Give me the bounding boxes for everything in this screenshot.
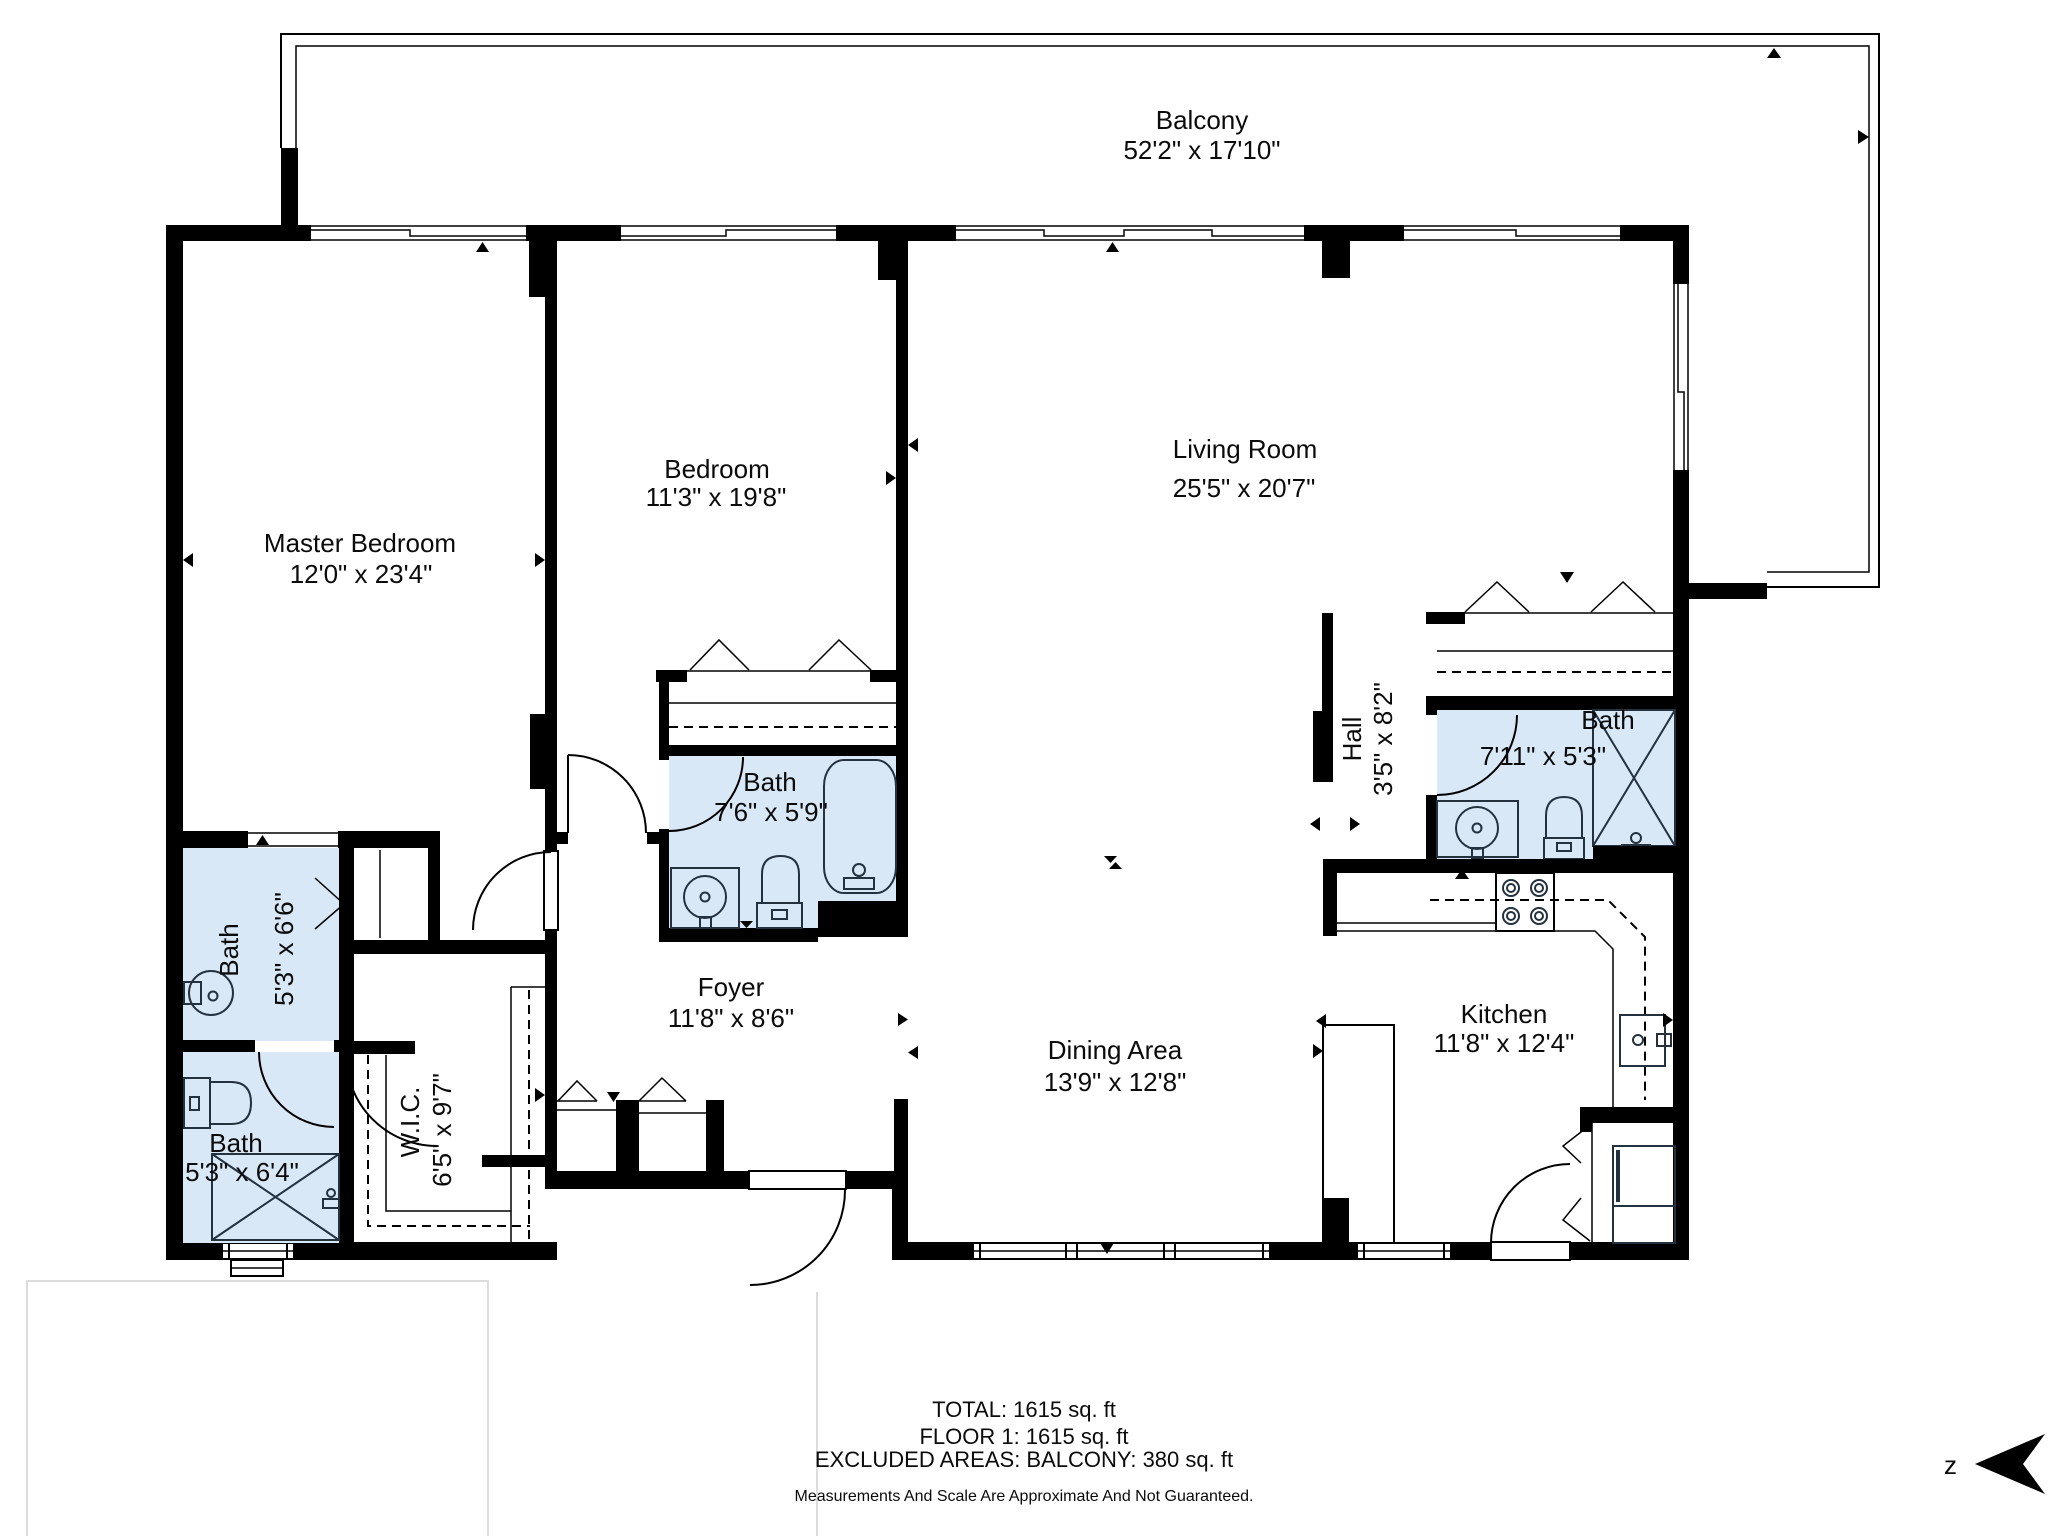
svg-text:13'9" x 12'8": 13'9" x 12'8" <box>1044 1067 1187 1097</box>
svg-text:11'3" x 19'8": 11'3" x 19'8" <box>646 482 787 512</box>
svg-text:Measurements And Scale Are App: Measurements And Scale Are Approximate A… <box>795 1488 1254 1505</box>
svg-text:Kitchen: Kitchen <box>1461 999 1548 1029</box>
svg-text:W.I.C.: W.I.C. <box>395 1087 425 1158</box>
svg-text:Hall: Hall <box>1337 717 1367 762</box>
svg-text:25'5" x 20'7": 25'5" x 20'7" <box>1173 473 1316 503</box>
svg-text:11'8" x 12'4": 11'8" x 12'4" <box>1434 1028 1575 1058</box>
svg-text:EXCLUDED AREAS: BALCONY: 380 s: EXCLUDED AREAS: BALCONY: 380 sq. ft <box>815 1447 1233 1472</box>
svg-text:3'5" x 8'2": 3'5" x 8'2" <box>1368 682 1398 796</box>
svg-text:Living Room: Living Room <box>1173 434 1318 464</box>
svg-text:Balcony: Balcony <box>1156 105 1249 135</box>
svg-text:TOTAL: 1615 sq. ft: TOTAL: 1615 sq. ft <box>932 1397 1116 1422</box>
svg-text:Bath: Bath <box>209 1128 263 1158</box>
svg-text:FLOOR 1: 1615 sq. ft: FLOOR 1: 1615 sq. ft <box>919 1424 1128 1449</box>
svg-text:Dining Area: Dining Area <box>1048 1035 1183 1065</box>
svg-text:Bedroom: Bedroom <box>664 454 770 484</box>
svg-text:Bath: Bath <box>1581 705 1635 735</box>
svg-text:7'11" x 5'3": 7'11" x 5'3" <box>1480 741 1606 771</box>
svg-text:5'3" x 6'4": 5'3" x 6'4" <box>185 1157 299 1187</box>
svg-text:6'5" x 9'7": 6'5" x 9'7" <box>427 1073 457 1187</box>
svg-text:Bath: Bath <box>743 767 797 797</box>
svg-text:5'3" x 6'6": 5'3" x 6'6" <box>269 892 299 1006</box>
svg-text:7'6" x 5'9": 7'6" x 5'9" <box>714 797 828 827</box>
svg-text:Foyer: Foyer <box>698 972 765 1002</box>
svg-text:12'0" x 23'4": 12'0" x 23'4" <box>290 559 433 589</box>
svg-text:Master Bedroom: Master Bedroom <box>264 528 456 558</box>
svg-text:11'8" x 8'6": 11'8" x 8'6" <box>668 1003 794 1033</box>
svg-text:Bath: Bath <box>214 923 244 977</box>
svg-text:52'2" x 17'10": 52'2" x 17'10" <box>1123 135 1280 165</box>
svg-text:z: z <box>1944 1450 1957 1480</box>
